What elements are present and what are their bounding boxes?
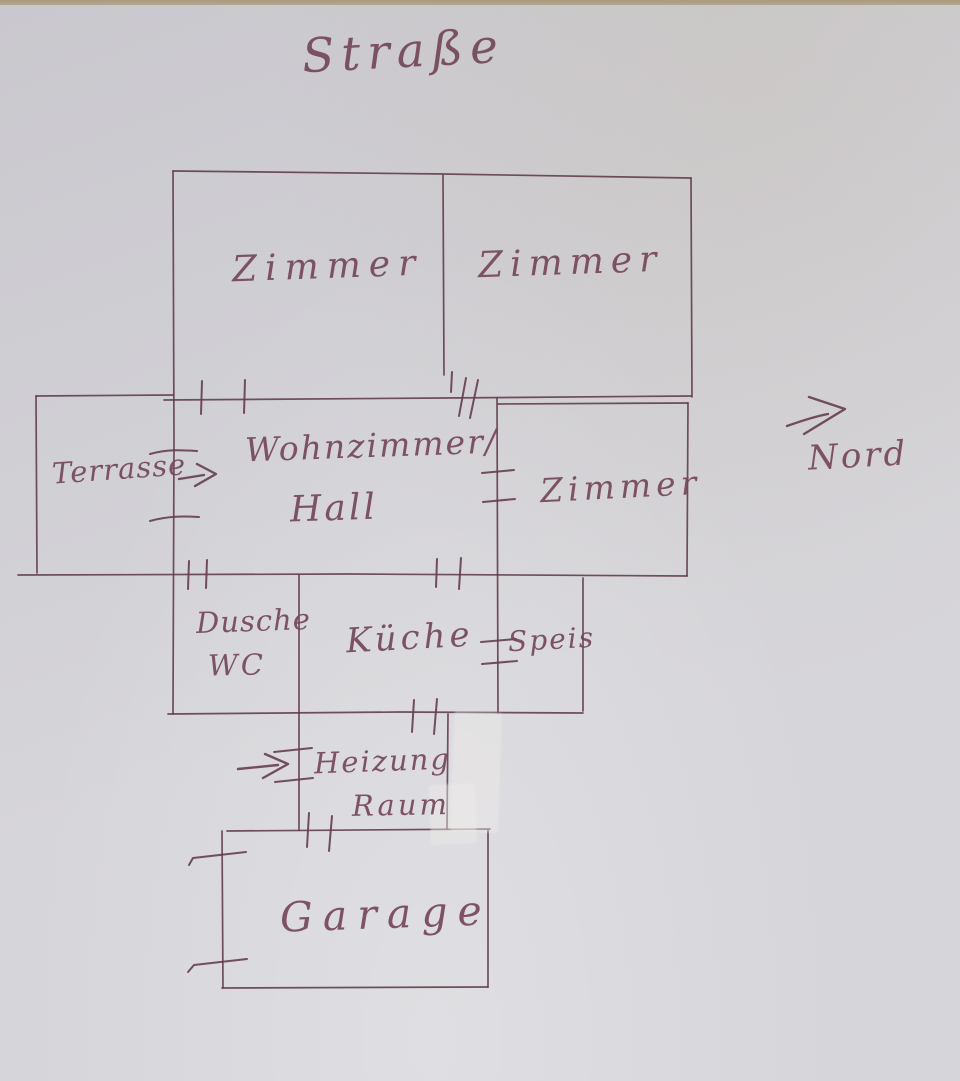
- room-label-heizung: Heizung: [313, 742, 451, 781]
- room-label-raum: Raum: [352, 787, 451, 823]
- room-label-hall: Hall: [289, 486, 378, 530]
- room-label-zimmer-nw: Zimmer: [231, 243, 424, 291]
- street-label: Straße: [301, 19, 506, 85]
- room-label-dusche: Dusche: [195, 602, 311, 640]
- room-label-zimmer-ne: Zimmer: [477, 239, 664, 286]
- photographed-sketch-paper: Straße Zimmer Zimmer Terrasse Wohnzimmer…: [0, 0, 960, 1081]
- north-arrow-icon: [787, 397, 845, 434]
- room-label-wc: WC: [208, 647, 267, 682]
- wall-lines: [18, 171, 692, 988]
- room-label-garage: Garage: [279, 886, 492, 941]
- heizung-entrance-arrow: [238, 754, 288, 778]
- room-label-speis: Speis: [507, 621, 596, 659]
- room-label-kueche: Küche: [345, 615, 475, 662]
- north-label: Nord: [807, 433, 909, 478]
